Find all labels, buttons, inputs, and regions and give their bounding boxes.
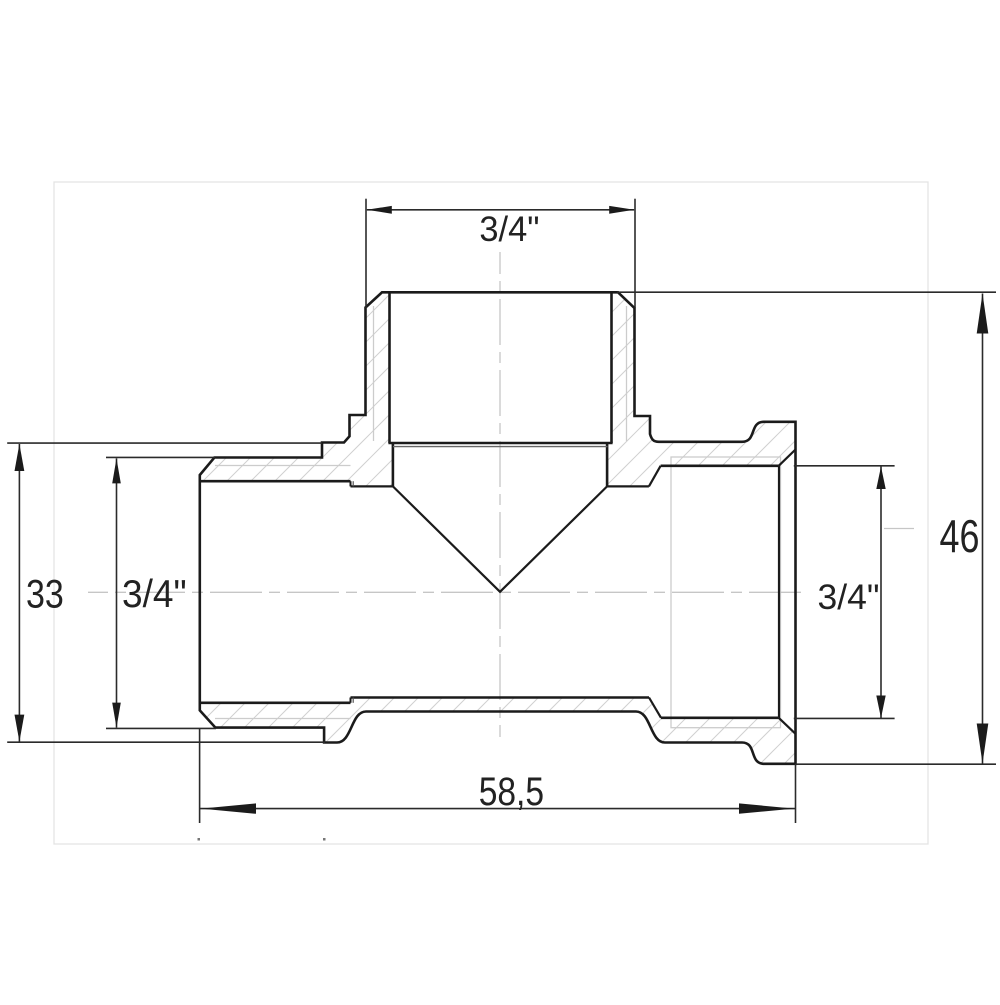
svg-text:3/4": 3/4" — [479, 210, 539, 250]
svg-text:46: 46 — [940, 511, 980, 562]
svg-text:3/4": 3/4" — [122, 573, 187, 616]
svg-text:3/4": 3/4" — [818, 577, 880, 617]
svg-text:58,5: 58,5 — [479, 769, 544, 813]
svg-text:33: 33 — [26, 571, 64, 616]
